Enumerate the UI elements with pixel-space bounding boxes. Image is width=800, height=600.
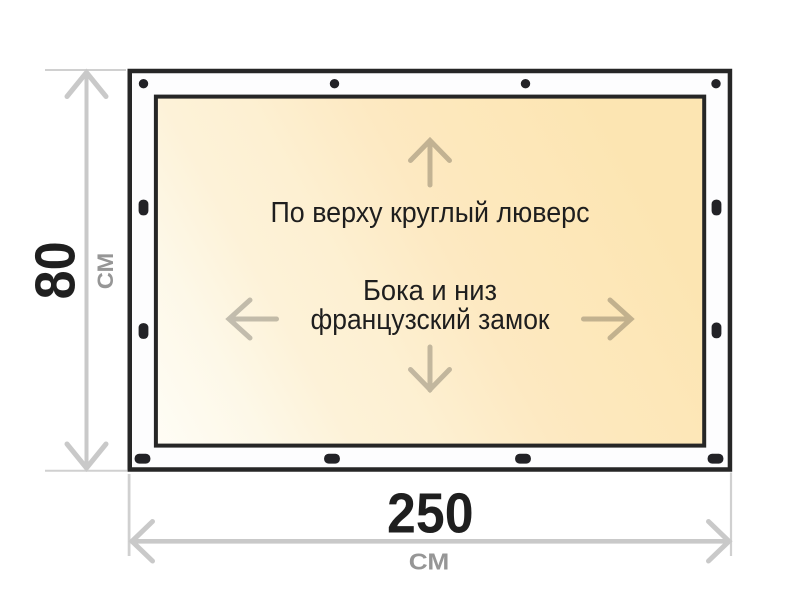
svg-text:СМ: СМ <box>93 253 118 290</box>
svg-text:Бока и низ: Бока и низ <box>363 275 497 307</box>
svg-text:250: 250 <box>387 482 474 546</box>
svg-text:По верху круглый люверс: По верху круглый люверс <box>271 197 590 229</box>
svg-text:французский замок: французский замок <box>311 304 550 336</box>
svg-text:СМ: СМ <box>409 549 450 575</box>
svg-text:80: 80 <box>24 241 88 299</box>
